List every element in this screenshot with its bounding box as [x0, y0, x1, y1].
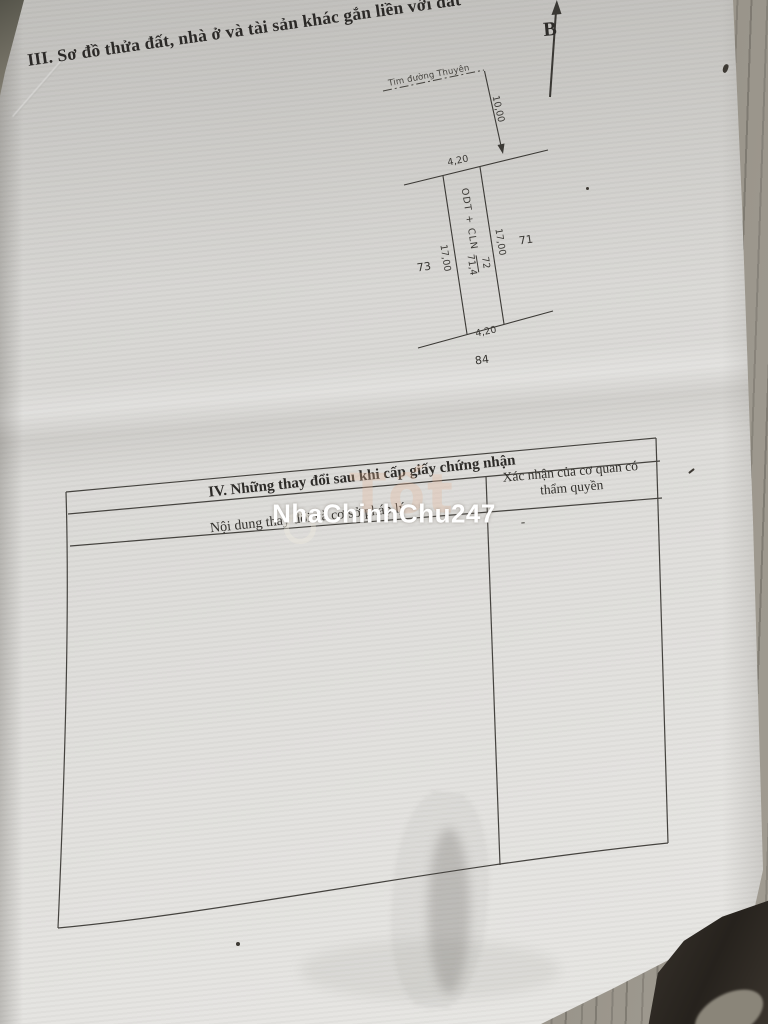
north-label: B: [542, 18, 557, 42]
north-arrow-icon: [550, 0, 562, 97]
neighbor-parcel-right: 71: [518, 233, 534, 248]
floor-gap: [686, 979, 768, 1024]
paper-shadow-band: [300, 940, 560, 1000]
parcel-number-area: 72 71,4: [463, 252, 492, 277]
paper-speck: [236, 942, 240, 946]
watermark-text: NhaChinhChu247: [272, 499, 496, 530]
neighbor-parcel-bottom: 84: [474, 353, 490, 368]
neighbor-parcel-left: 73: [416, 260, 432, 275]
photo-of-land-certificate-page: III. Sơ đồ thửa đất, nhà ở và tài sản kh…: [0, 0, 768, 1024]
paper-speck: [586, 187, 589, 190]
parcel-number: 72: [479, 256, 492, 270]
